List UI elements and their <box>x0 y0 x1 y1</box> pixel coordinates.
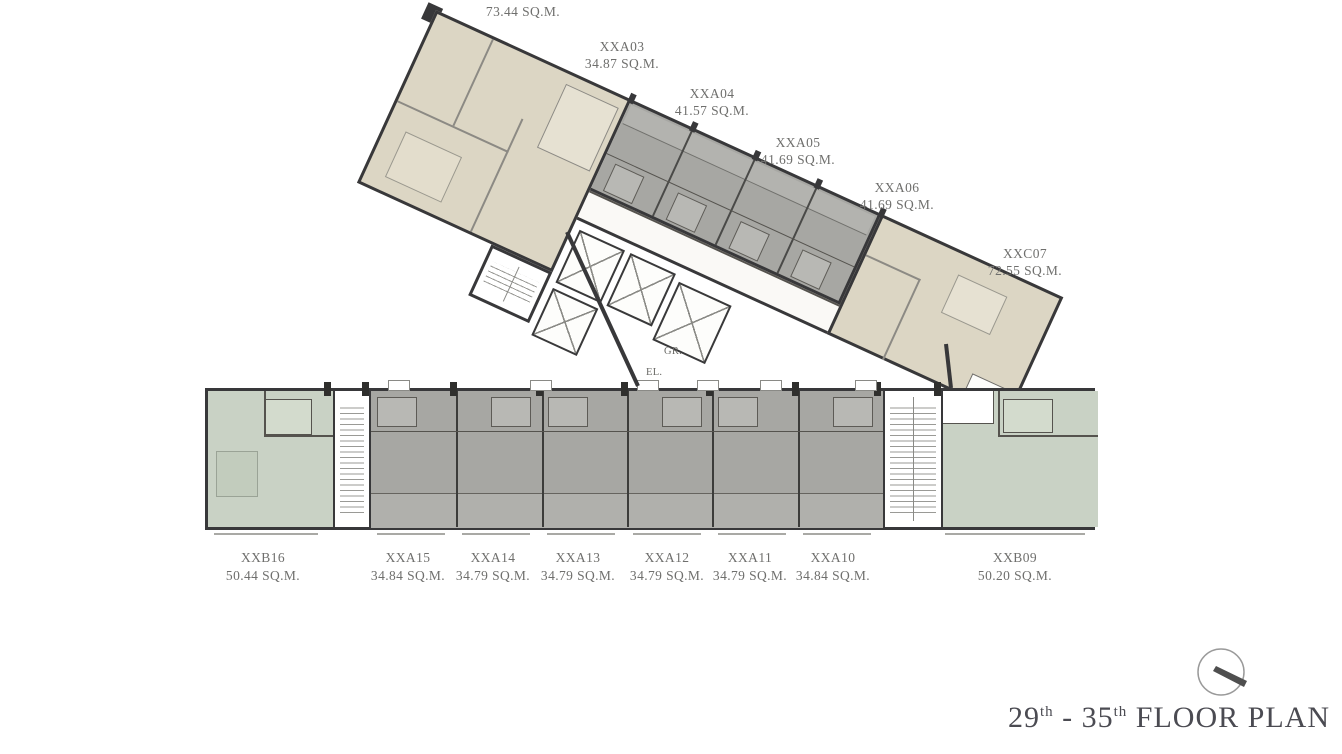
unit-area: 50.44 SQ.M. <box>226 567 300 585</box>
ac-ledge <box>637 380 659 391</box>
bathroom <box>491 397 531 427</box>
interior-wall <box>264 435 333 437</box>
unit-id: XXC07 <box>988 245 1062 262</box>
balcony-rail <box>462 533 530 535</box>
unit-area: 41.69 SQ.M. <box>860 196 934 213</box>
unit-id: XXA04 <box>675 85 749 102</box>
unit-area: 41.69 SQ.M. <box>761 151 835 168</box>
balcony-rail <box>803 533 871 535</box>
unit-label: 73.44 SQ.M. <box>486 3 560 20</box>
unit-area: 34.87 SQ.M. <box>585 55 659 72</box>
compass-icon <box>1198 649 1244 695</box>
column <box>792 382 799 396</box>
interior-wall <box>882 278 920 360</box>
bathroom <box>603 164 645 205</box>
bathroom <box>790 249 832 290</box>
stair-treads <box>890 403 936 515</box>
unit-XXB16 <box>208 391 333 527</box>
unit-label: XXA15 34.84 SQ.M. <box>371 549 445 585</box>
stair-treads <box>340 403 364 515</box>
unit-id: XXA03 <box>585 38 659 55</box>
bathroom <box>548 397 588 427</box>
bathroom <box>264 399 312 435</box>
column <box>324 382 331 396</box>
entry-nook <box>943 391 994 424</box>
balcony-rail <box>547 533 615 535</box>
unit-area: 34.79 SQ.M. <box>541 567 615 585</box>
title-dash: - <box>1054 701 1082 734</box>
bedroom-detail <box>216 451 258 497</box>
unit-area: 34.79 SQ.M. <box>456 567 530 585</box>
bathroom <box>728 221 770 262</box>
unit-label: XXA11 34.79 SQ.M. <box>713 549 787 585</box>
title-text: FLOOR PLAN <box>1127 701 1330 734</box>
stairwell-left <box>333 391 371 527</box>
unit-label: XXA10 34.84 SQ.M. <box>796 549 870 585</box>
balcony-rail <box>945 533 1085 535</box>
unit-id: XXA13 <box>541 549 615 567</box>
compass-needle <box>1213 666 1247 687</box>
unit-id: XXB09 <box>978 549 1052 567</box>
unit-label: XXA03 34.87 SQ.M. <box>585 38 659 72</box>
bathroom <box>718 397 758 427</box>
bathroom <box>941 274 1008 335</box>
unit-id: XXA12 <box>630 549 704 567</box>
interior-wall <box>371 431 883 432</box>
ac-ledge <box>855 380 877 391</box>
unit-area: 34.79 SQ.M. <box>713 567 787 585</box>
elevator-label: EL. <box>646 367 662 378</box>
unit-area: 41.57 SQ.M. <box>675 102 749 119</box>
column <box>450 382 457 396</box>
ac-ledge <box>697 380 719 391</box>
floor-plan-canvas: 73.44 SQ.M. XXA03 34.87 SQ.M. XXA04 41.5… <box>0 0 1342 754</box>
ac-ledge <box>760 380 782 391</box>
unit-XXB09 <box>943 391 1098 527</box>
unit-label: XXA04 41.57 SQ.M. <box>675 85 749 119</box>
bathroom <box>662 397 702 427</box>
unit-area: 73.44 SQ.M. <box>486 3 560 20</box>
unit-area: 50.20 SQ.M. <box>978 567 1052 585</box>
interior-wall <box>452 39 493 126</box>
unit-label: XXB16 50.44 SQ.M. <box>226 549 300 585</box>
title-floor-end: 35 <box>1082 701 1114 734</box>
stairwell-right <box>883 391 943 527</box>
bathroom <box>1003 399 1053 433</box>
unit-label: XXA06 41.69 SQ.M. <box>860 179 934 213</box>
interior-wall <box>866 254 921 280</box>
overlay-graphics <box>0 0 1342 754</box>
unit-label: XXA12 34.79 SQ.M. <box>630 549 704 585</box>
column <box>362 382 369 396</box>
interior-wall <box>998 391 1000 435</box>
unit-id: XXA05 <box>761 134 835 151</box>
unit-id: XXA14 <box>456 549 530 567</box>
column <box>934 382 941 396</box>
balcony-rail <box>718 533 786 535</box>
unit-label: XXA13 34.79 SQ.M. <box>541 549 615 585</box>
lower-gray-units <box>371 391 883 527</box>
interior-wall <box>264 391 266 435</box>
unit-id: XXA11 <box>713 549 787 567</box>
balcony-rail <box>377 533 445 535</box>
column <box>621 382 628 396</box>
garbage-room-label: GR. <box>664 346 682 357</box>
upper-wing <box>381 10 1063 417</box>
balcony-rail <box>214 533 318 535</box>
lower-wing <box>205 388 1095 530</box>
bathroom <box>666 192 708 233</box>
unit-label: XXA05 41.69 SQ.M. <box>761 134 835 168</box>
unit-area: 34.84 SQ.M. <box>371 567 445 585</box>
unit-label: XXB09 50.20 SQ.M. <box>978 549 1052 585</box>
interior-wall <box>470 118 523 231</box>
unit-wall <box>798 391 800 527</box>
stair-treads <box>482 261 539 306</box>
ac-ledge <box>388 380 410 391</box>
unit-area: 72.55 SQ.M. <box>988 262 1062 279</box>
ac-ledge <box>530 380 552 391</box>
unit-id: XXB16 <box>226 549 300 567</box>
page-title: 29th - 35th FLOOR PLAN <box>1008 701 1330 735</box>
elevator-shaft <box>531 288 598 356</box>
unit-id: XXA15 <box>371 549 445 567</box>
unit-label: XXA14 34.79 SQ.M. <box>456 549 530 585</box>
bathroom <box>377 397 417 427</box>
title-sup2: th <box>1114 704 1128 720</box>
unit-id: XXA10 <box>796 549 870 567</box>
bedroom-detail <box>385 131 462 202</box>
unit-wall <box>627 391 629 527</box>
title-sup1: th <box>1040 704 1054 720</box>
unit-wall <box>542 391 544 527</box>
title-floor-start: 29 <box>1008 701 1040 734</box>
unit-label: XXC07 72.55 SQ.M. <box>988 245 1062 279</box>
interior-wall <box>998 435 1098 437</box>
bathroom <box>833 397 873 427</box>
unit-wall <box>712 391 714 527</box>
unit-area: 34.84 SQ.M. <box>796 567 870 585</box>
unit-id: XXA06 <box>860 179 934 196</box>
unit-wall <box>456 391 458 527</box>
balcony-rail <box>633 533 701 535</box>
unit-area: 34.79 SQ.M. <box>630 567 704 585</box>
